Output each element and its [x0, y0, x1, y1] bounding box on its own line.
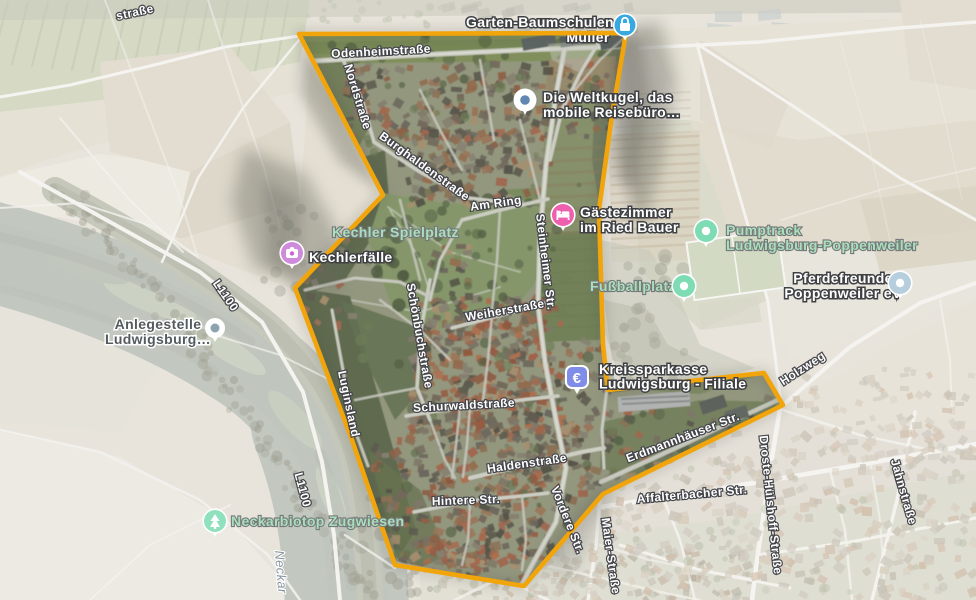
svg-text:Gästezimmer: Gästezimmer [580, 204, 672, 220]
svg-text:Pferdefreunde: Pferdefreunde [793, 270, 892, 286]
svg-text:Hintere Str.: Hintere Str. [432, 492, 501, 508]
svg-text:€: € [573, 370, 582, 387]
svg-text:Poppenweiler eV: Poppenweiler eV [784, 285, 902, 301]
svg-text:im Ried Bauer: im Ried Bauer [580, 219, 679, 235]
svg-text:Ludwigsburg-Poppenweiler: Ludwigsburg-Poppenweiler [726, 237, 918, 253]
svg-text:Kechlerfälle: Kechlerfälle [309, 249, 393, 265]
svg-text:Die Weltkugel, das: Die Weltkugel, das [543, 89, 673, 105]
svg-text:mobile Reisebüro…: mobile Reisebüro… [543, 104, 680, 120]
svg-text:Ludwigsburg…: Ludwigsburg… [105, 331, 211, 347]
svg-text:Ludwigsburg - Filiale: Ludwigsburg - Filiale [599, 376, 746, 392]
svg-text:Garten-Baumschulen: Garten-Baumschulen [466, 14, 614, 30]
svg-text:Pumptrack: Pumptrack [726, 222, 802, 238]
svg-text:Fußballplatz: Fußballplatz [590, 278, 676, 294]
svg-text:Neckarbiotop Zugwiesen: Neckarbiotop Zugwiesen [231, 513, 404, 529]
svg-text:Kechler Spielplatz: Kechler Spielplatz [332, 224, 459, 240]
svg-text:Anlegestelle: Anlegestelle [115, 316, 202, 332]
